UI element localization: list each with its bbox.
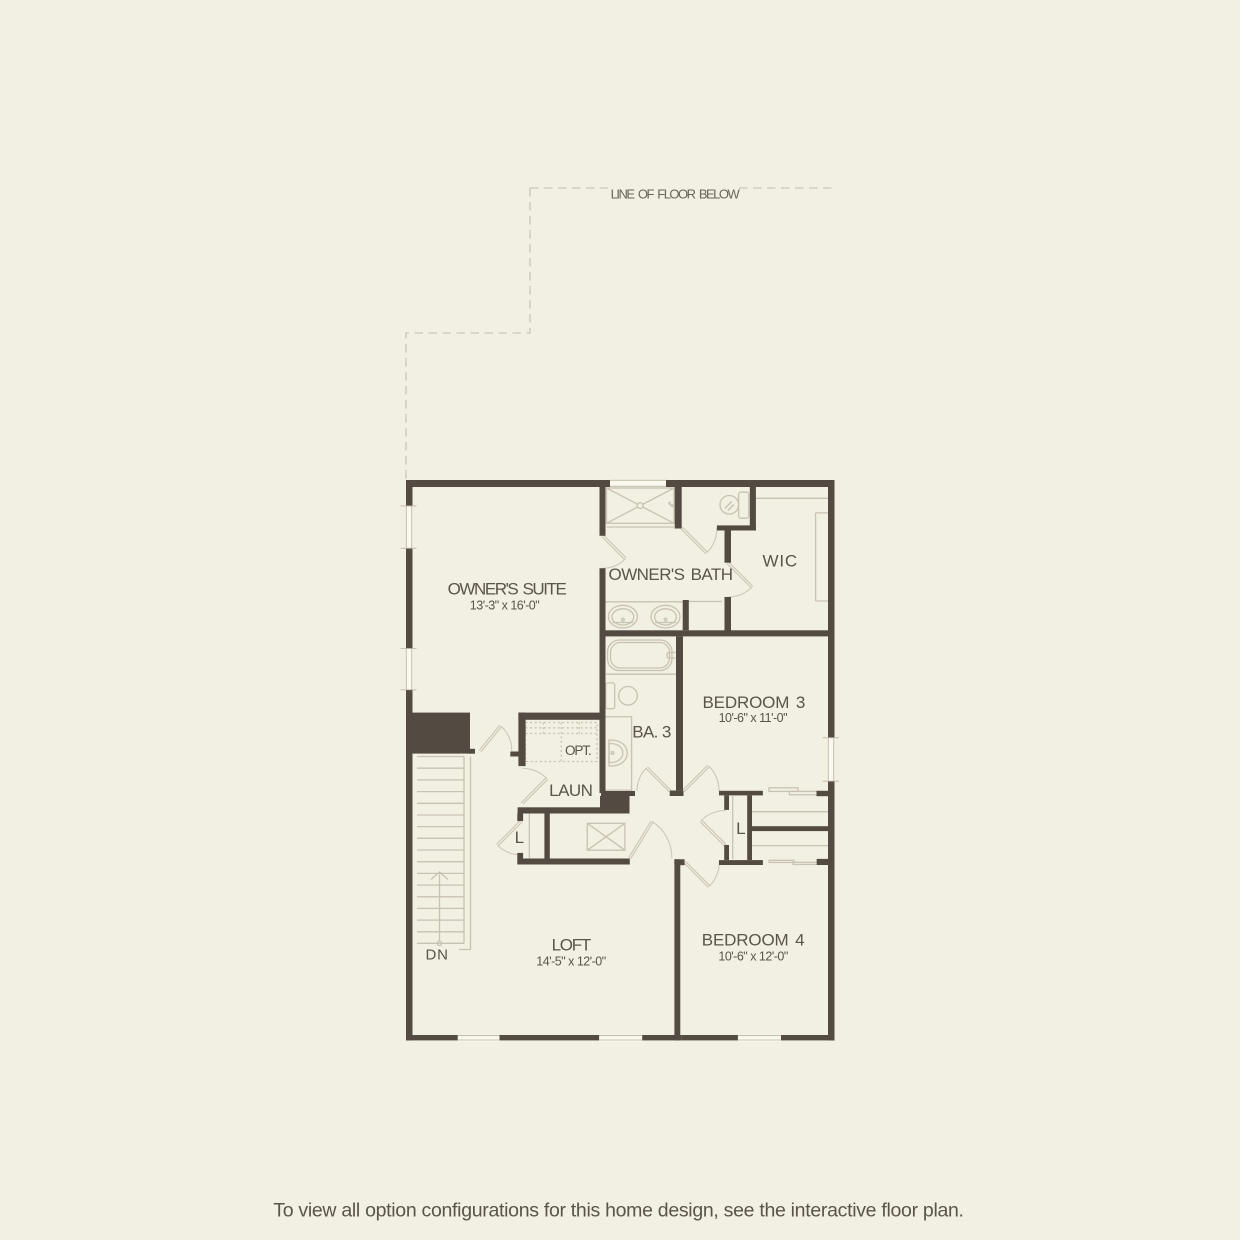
svg-text:14'-5" x 12'-0": 14'-5" x 12'-0" — [536, 955, 605, 969]
svg-text:LAUN: LAUN — [549, 781, 592, 800]
svg-text:BEDROOM 3: BEDROOM 3 — [702, 693, 805, 712]
svg-text:To view all option configurati: To view all option configurations for th… — [273, 1200, 963, 1222]
svg-text:OWNER'S SUITE: OWNER'S SUITE — [448, 580, 567, 599]
svg-text:LOFT: LOFT — [552, 936, 591, 955]
svg-text:13'-3" x 16'-0": 13'-3" x 16'-0" — [470, 599, 539, 613]
svg-text:10'-6" x 11'-0": 10'-6" x 11'-0" — [719, 711, 788, 725]
svg-text:L: L — [736, 819, 745, 838]
svg-text:10'-6" x 12'-0": 10'-6" x 12'-0" — [718, 950, 787, 964]
svg-text:LINE OF FLOOR BELOW: LINE OF FLOOR BELOW — [611, 187, 741, 202]
svg-text:BEDROOM 4: BEDROOM 4 — [702, 931, 805, 950]
svg-text:L: L — [515, 828, 524, 847]
svg-text:WIC: WIC — [762, 552, 797, 571]
svg-text:OPT.: OPT. — [565, 743, 591, 758]
svg-text:OWNER'S BATH: OWNER'S BATH — [609, 565, 733, 584]
svg-text:BA. 3: BA. 3 — [632, 723, 671, 742]
svg-text:DN: DN — [425, 947, 448, 964]
